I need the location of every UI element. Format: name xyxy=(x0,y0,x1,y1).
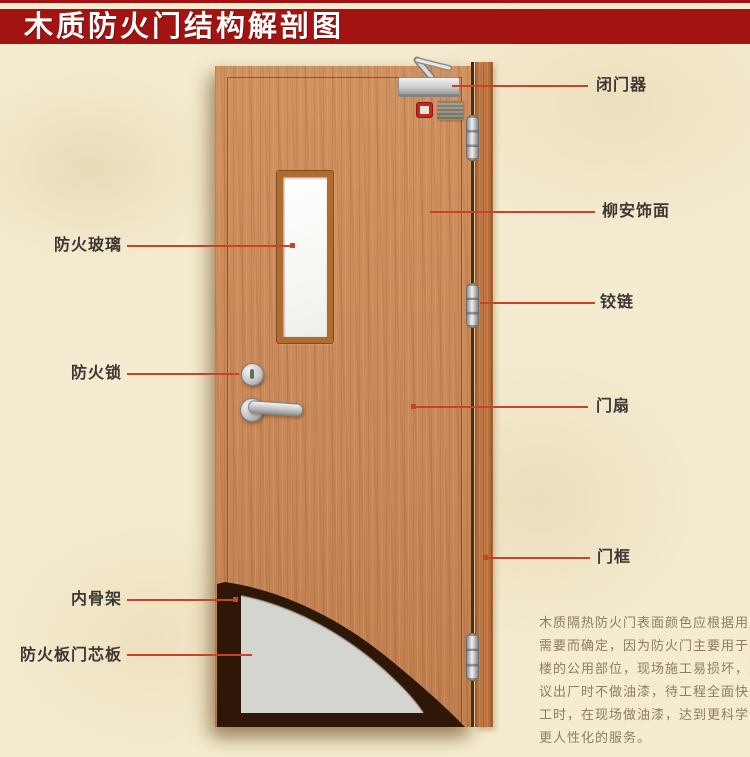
leader-lauan-veneer xyxy=(430,211,595,213)
leader-door-leaf xyxy=(414,406,588,408)
fire-door-illustration xyxy=(215,62,493,727)
label-fire-lock: 防火锁 xyxy=(18,365,122,383)
fire-lock-cylinder xyxy=(241,363,264,386)
note-line: 楼的公用部位，现场施工易损坏，建 xyxy=(539,657,747,680)
note-line: 工时，在现场做油漆，达到更科学化 xyxy=(539,703,747,726)
core-board-shape xyxy=(241,596,423,713)
note-line: 木质隔热防火门表面颜色应根据用户 xyxy=(539,611,747,634)
diagram-canvas: 木质防火门结构解剖图 xyxy=(0,0,750,757)
keyhole xyxy=(250,369,254,379)
label-hinge: 铰链 xyxy=(600,294,634,312)
label-door-closer: 闭门器 xyxy=(596,77,647,95)
page-title: 木质防火门结构解剖图 xyxy=(24,10,344,44)
leader-fire-lock xyxy=(127,373,239,375)
leader-door-frame-dot xyxy=(483,555,488,560)
title-bar: 木质防火门结构解剖图 xyxy=(0,9,750,44)
hinge-bottom xyxy=(466,633,479,681)
hinge-middle xyxy=(466,283,479,328)
label-inner-skeleton: 内骨架 xyxy=(18,591,122,609)
alarm-button xyxy=(417,103,432,117)
label-fire-board-core: 防火板门芯板 xyxy=(18,647,122,665)
label-door-leaf: 门扇 xyxy=(596,398,630,416)
leader-inner-skeleton-dot xyxy=(233,597,238,602)
leader-door-closer xyxy=(452,85,588,87)
door-frame-gap xyxy=(471,62,474,727)
leader-fire-glass xyxy=(127,245,292,247)
leader-hinge xyxy=(480,302,595,304)
hinge-top xyxy=(466,115,479,161)
leader-door-leaf-dot xyxy=(411,404,416,409)
top-accent-line xyxy=(0,0,750,3)
door-frame-strip xyxy=(475,62,493,727)
door-closer-body xyxy=(398,77,460,97)
label-door-frame: 门框 xyxy=(597,549,631,567)
leader-fire-board-core xyxy=(127,654,252,656)
cutaway-section xyxy=(215,572,471,727)
label-lauan-veneer: 柳安饰面 xyxy=(602,203,670,221)
leader-fire-glass-dot xyxy=(290,243,295,248)
fire-glass-window xyxy=(277,171,333,343)
door-leaf xyxy=(215,66,471,727)
label-fire-glass: 防火玻璃 xyxy=(18,237,122,255)
key-plate xyxy=(437,101,463,120)
note-line: 更人性化的服务。 xyxy=(539,726,747,749)
note-line: 议出厂时不做油漆，待工程全面快完 xyxy=(539,680,747,703)
note-line: 需要而确定，因为防火门主要用于大 xyxy=(539,634,747,657)
description-note: 木质隔热防火门表面颜色应根据用户 需要而确定，因为防火门主要用于大 楼的公用部位… xyxy=(539,611,747,749)
leader-door-frame xyxy=(486,557,590,559)
leader-inner-skeleton xyxy=(127,599,235,601)
